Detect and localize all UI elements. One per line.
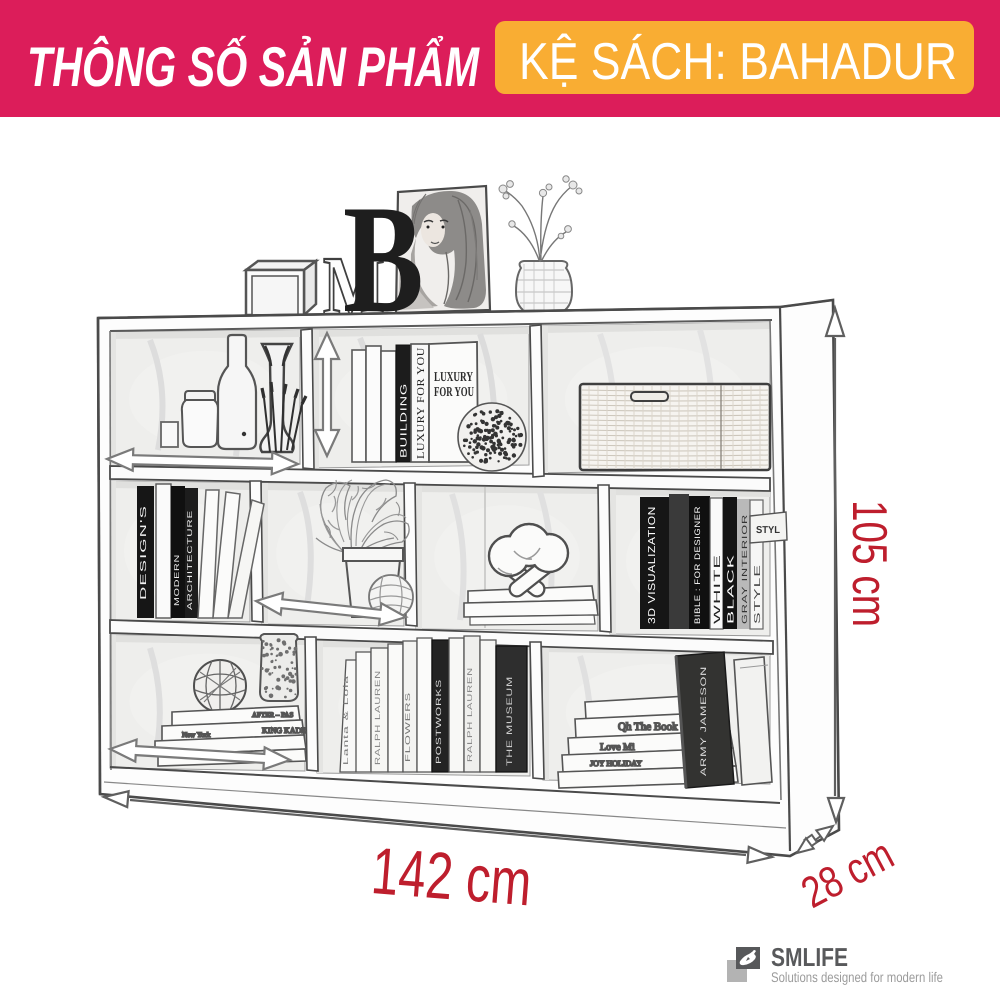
svg-text:JOY HOLIDAY: JOY HOLIDAY: [590, 759, 642, 768]
svg-text:KỆ SÁCH: BAHADUR: KỆ SÁCH: BAHADUR: [519, 33, 957, 91]
svg-text:POSTWORKS: POSTWORKS: [434, 679, 443, 764]
svg-text:THÔNG SỐ SẢN PHẨM: THÔNG SỐ SẢN PHẨM: [27, 35, 480, 98]
svg-text:SMLIFE: SMLIFE: [771, 942, 848, 972]
svg-text:Love Mi: Love Mi: [600, 742, 635, 753]
svg-text:New York: New York: [182, 731, 211, 739]
svg-text:WHITE: WHITE: [712, 554, 722, 624]
svg-text:RALPH LAUREN: RALPH LAUREN: [373, 670, 382, 765]
svg-text:ARCHITECTURE: ARCHITECTURE: [187, 510, 194, 610]
svg-text:FLOWERS: FLOWERS: [405, 692, 412, 762]
svg-text:MODERN: MODERN: [174, 554, 181, 606]
svg-text:AFTER – PAS: AFTER – PAS: [252, 711, 293, 719]
svg-text:DESIGN'S: DESIGN'S: [138, 505, 148, 600]
svg-text:GRAY INTERIOR: GRAY INTERIOR: [740, 514, 749, 624]
svg-text:KING KADE: KING KADE: [262, 726, 306, 735]
svg-text:FOR YOU: FOR YOU: [434, 384, 474, 399]
svg-text:3D VISUALIZATION: 3D VISUALIZATION: [647, 506, 658, 624]
svg-text:STYL: STYL: [756, 525, 780, 536]
svg-text:105 cm: 105 cm: [842, 500, 896, 627]
svg-text:RALPH LAUREN: RALPH LAUREN: [467, 667, 474, 762]
svg-text:142 cm: 142 cm: [369, 833, 534, 919]
svg-text:ARMY JAMESON: ARMY JAMESON: [699, 666, 708, 776]
svg-text:BIBLE : FOR DESIGNER: BIBLE : FOR DESIGNER: [693, 506, 702, 624]
svg-text:Qh The Book: Qh The Book: [618, 721, 678, 733]
svg-text:THE MUSEUM: THE MUSEUM: [505, 676, 514, 766]
svg-text:LUXURY: LUXURY: [434, 369, 473, 384]
svg-text:Solutions designed for modern: Solutions designed for modern life: [771, 969, 943, 985]
svg-text:BUILDING: BUILDING: [399, 383, 409, 458]
svg-text:BLACK: BLACK: [726, 554, 736, 624]
svg-text:LUXURY FOR YOU: LUXURY FOR YOU: [416, 347, 427, 459]
svg-text:Lanta & Lola: Lanta & Lola: [342, 675, 350, 765]
svg-text:STYLE: STYLE: [752, 564, 762, 624]
